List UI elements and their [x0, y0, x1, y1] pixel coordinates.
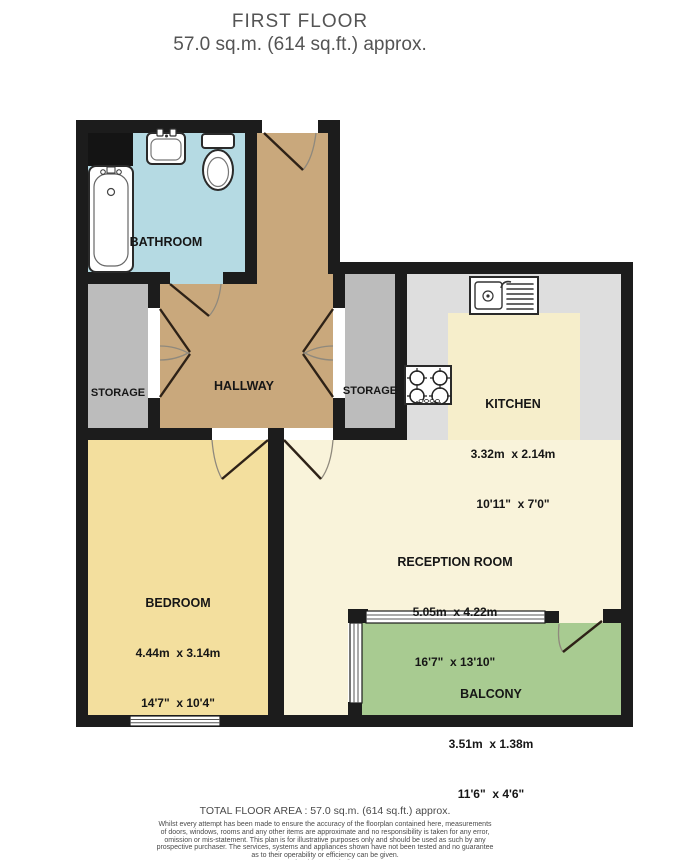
entrance-door — [264, 133, 316, 170]
kitchen-sink — [470, 277, 538, 314]
hallway-label: HALLWAY — [184, 343, 304, 429]
balcony-dim-metric: 3.51m x 1.38m — [391, 737, 591, 751]
bathroom-label: BATHROOM — [106, 199, 226, 285]
bedroom-dim-imperial: 14'7" x 10'4" — [78, 696, 278, 710]
bedroom-name: BEDROOM — [78, 596, 278, 610]
toilet — [202, 134, 234, 190]
bathroom-name: BATHROOM — [106, 235, 226, 249]
kitchen-dim-imperial: 10'11" x 7'0" — [433, 497, 593, 511]
bedroom-dim-metric: 4.44m x 3.14m — [78, 646, 278, 660]
bedroom-door — [212, 440, 268, 479]
reception-name: RECEPTION ROOM — [355, 555, 555, 569]
floorplan-page: FIRST FLOOR 57.0 sq.m. (614 sq.ft.) appr… — [0, 0, 700, 860]
kitchen-name: KITCHEN — [433, 397, 593, 411]
reception-dim-metric: 5.05m x 4.22m — [355, 605, 555, 619]
bathroom-sink — [147, 129, 185, 164]
reception-door — [284, 440, 333, 479]
balcony-door — [559, 621, 603, 652]
storage-left-label: STORAGE — [58, 351, 178, 436]
balcony-label: BALCONY 3.51m x 1.38m 11'6" x 4'6" — [391, 651, 591, 837]
bedroom-label: BEDROOM 4.44m x 3.14m 14'7" x 10'4" — [78, 560, 278, 746]
storage-left-name: STORAGE — [58, 387, 178, 400]
storage-right-label: STORAGE — [310, 349, 430, 434]
balcony-name: BALCONY — [391, 687, 591, 701]
kitchen-dim-metric: 3.32m x 2.14m — [433, 447, 593, 461]
balcony-dim-imperial: 11'6" x 4'6" — [391, 787, 591, 801]
bathroom-door — [170, 284, 221, 316]
hallway-name: HALLWAY — [184, 379, 304, 393]
storage-right-name: STORAGE — [310, 385, 430, 398]
